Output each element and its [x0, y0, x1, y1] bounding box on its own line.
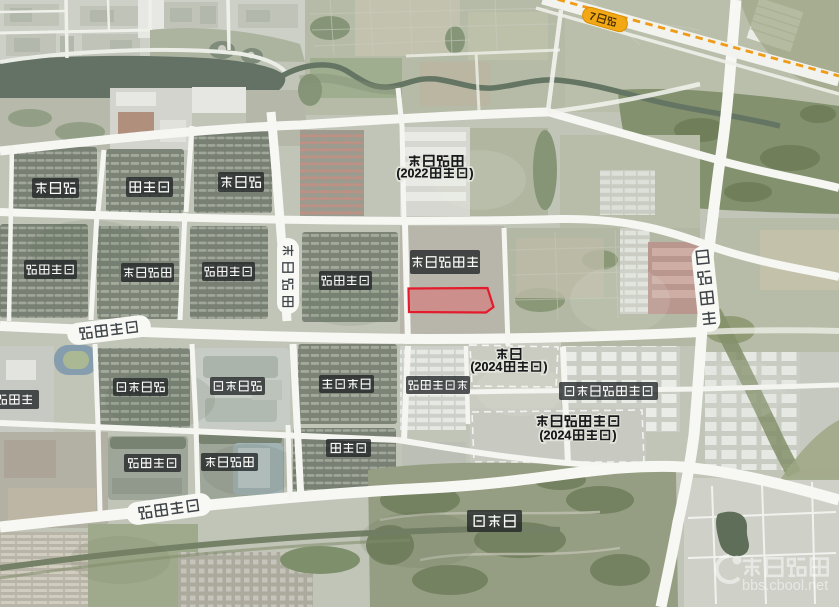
svg-text:): )	[469, 167, 473, 181]
svg-text:(2024: (2024	[539, 429, 571, 443]
svg-text:(2024: (2024	[470, 360, 502, 374]
svg-text:): )	[612, 429, 616, 443]
svg-text:): )	[543, 360, 547, 374]
svg-text:(2022: (2022	[396, 167, 428, 181]
svg-text:bbs.cbool.net: bbs.cbool.net	[742, 578, 828, 594]
